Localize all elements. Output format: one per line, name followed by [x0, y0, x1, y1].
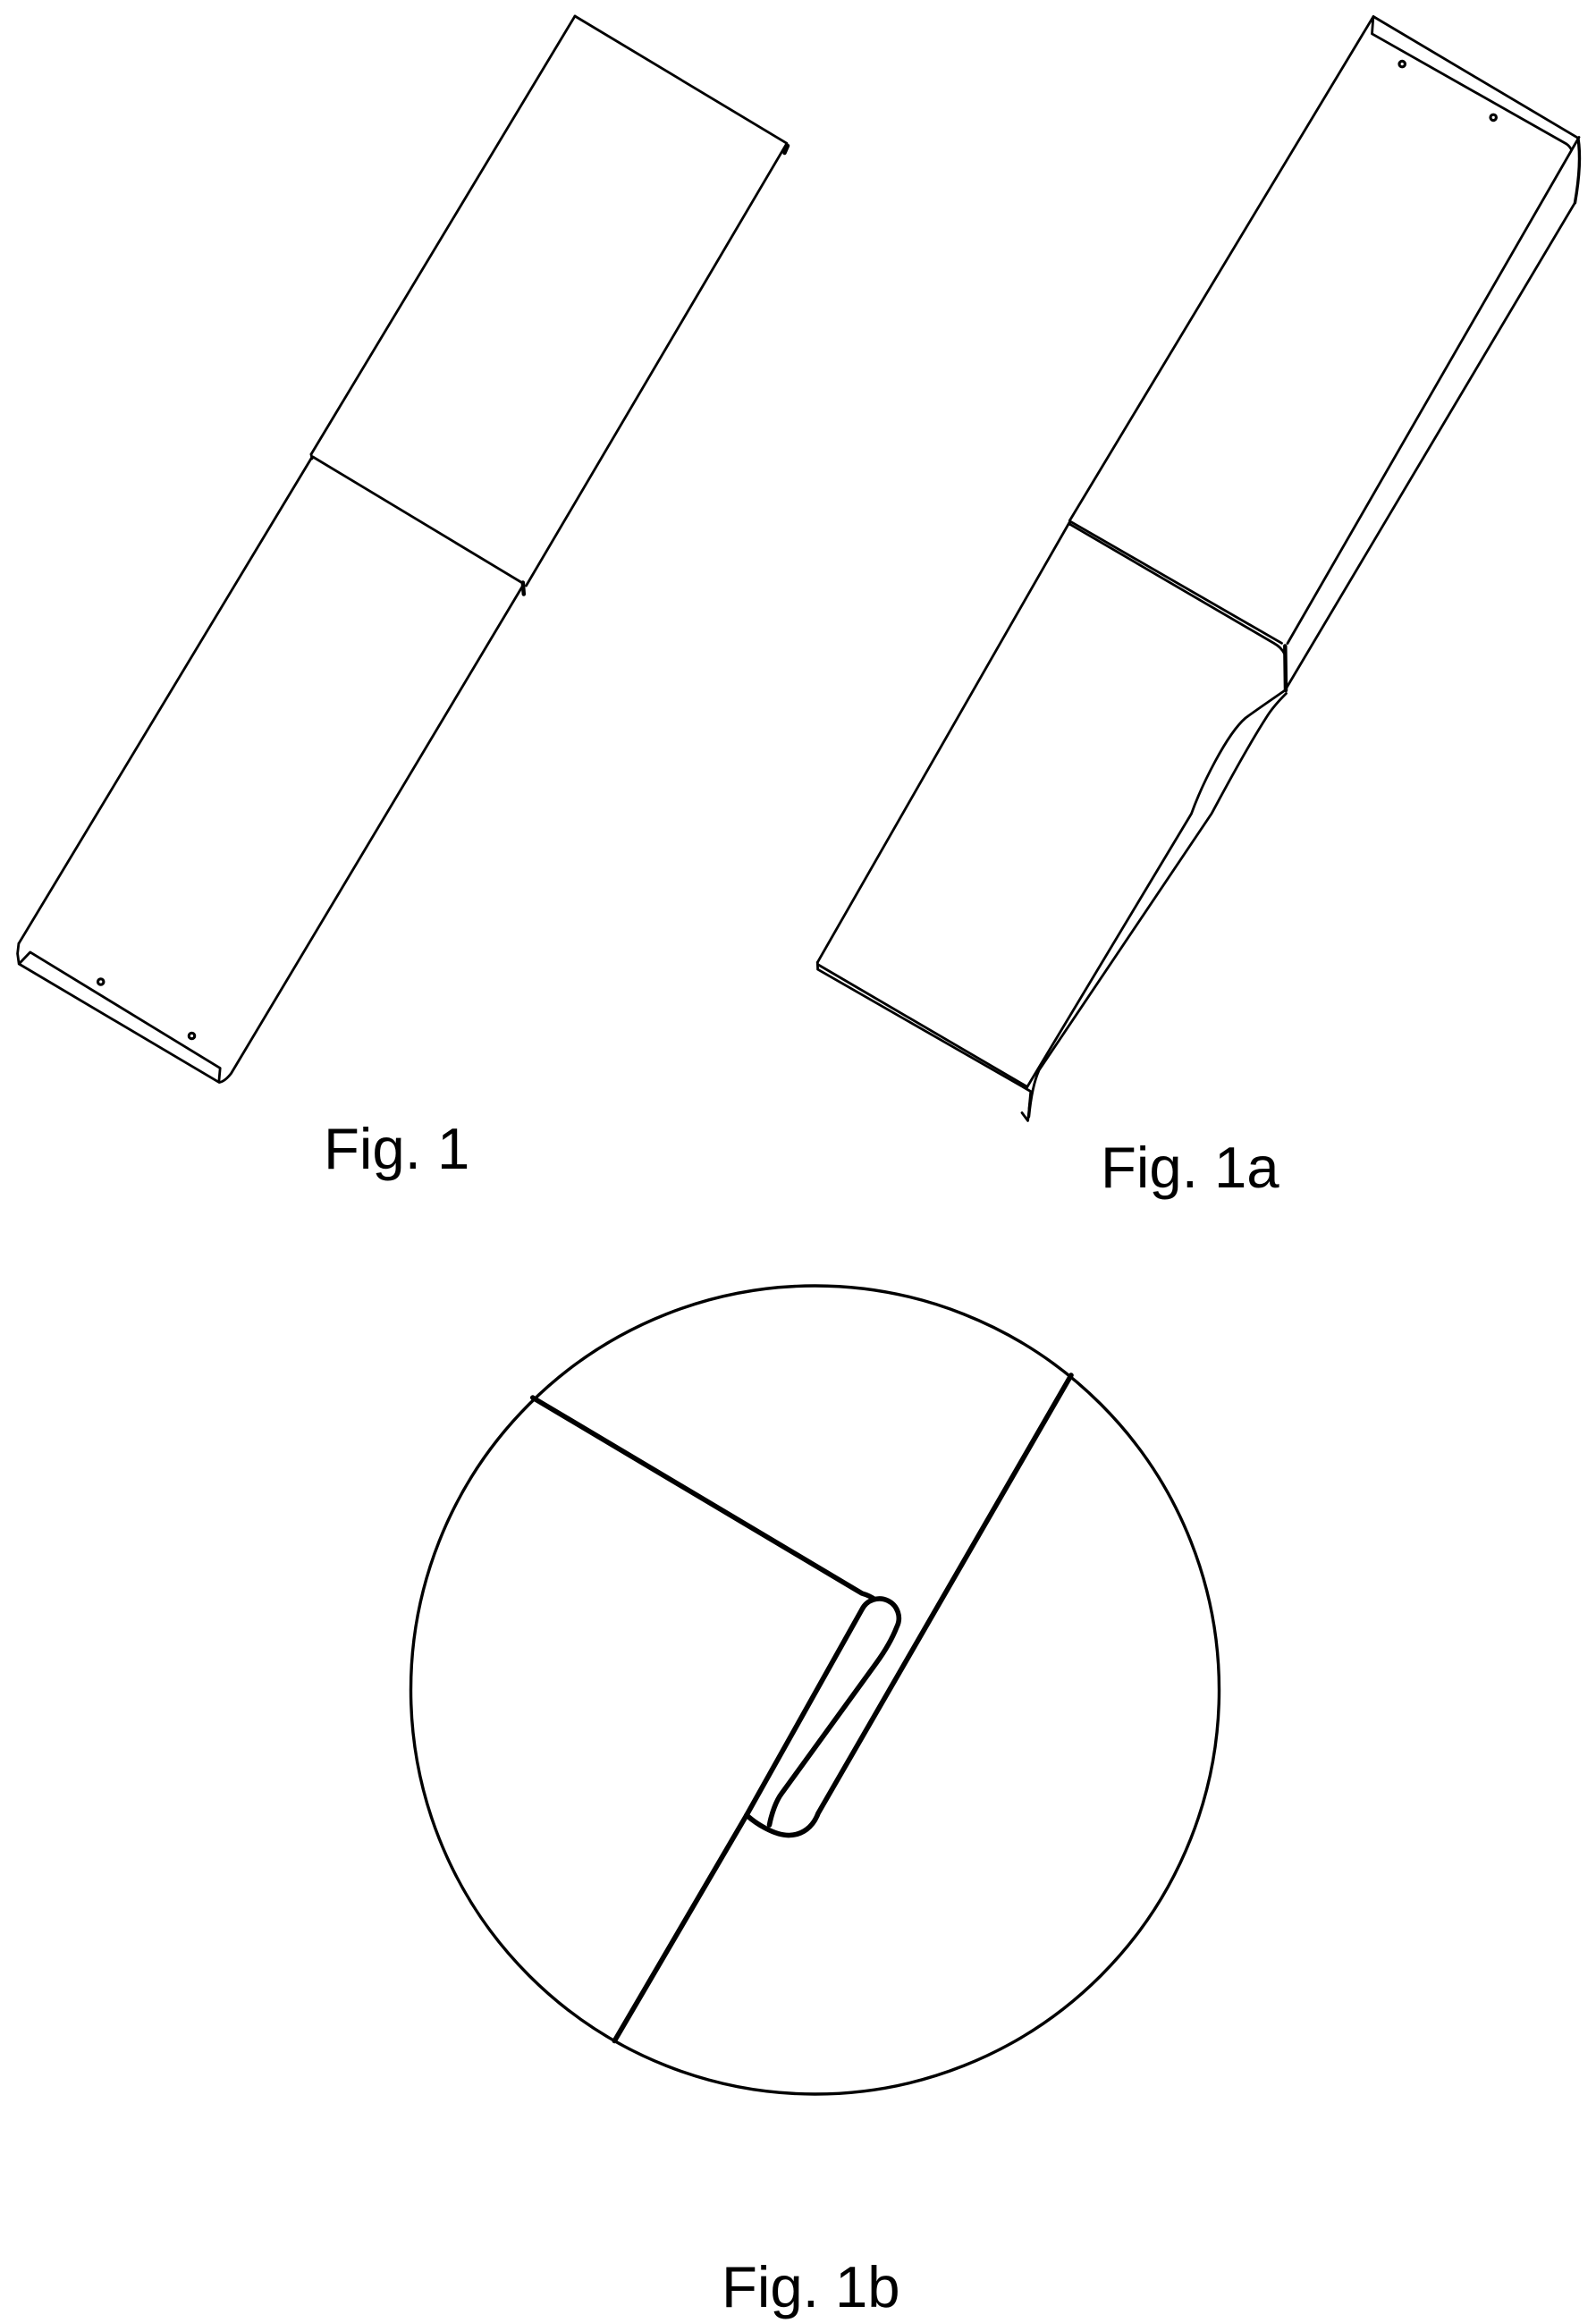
svg-text:Fig. 1a: Fig. 1a: [1101, 1135, 1279, 1200]
svg-text:Fig. 1: Fig. 1: [324, 1116, 469, 1181]
svg-text:Fig. 1b: Fig. 1b: [722, 2254, 900, 2319]
